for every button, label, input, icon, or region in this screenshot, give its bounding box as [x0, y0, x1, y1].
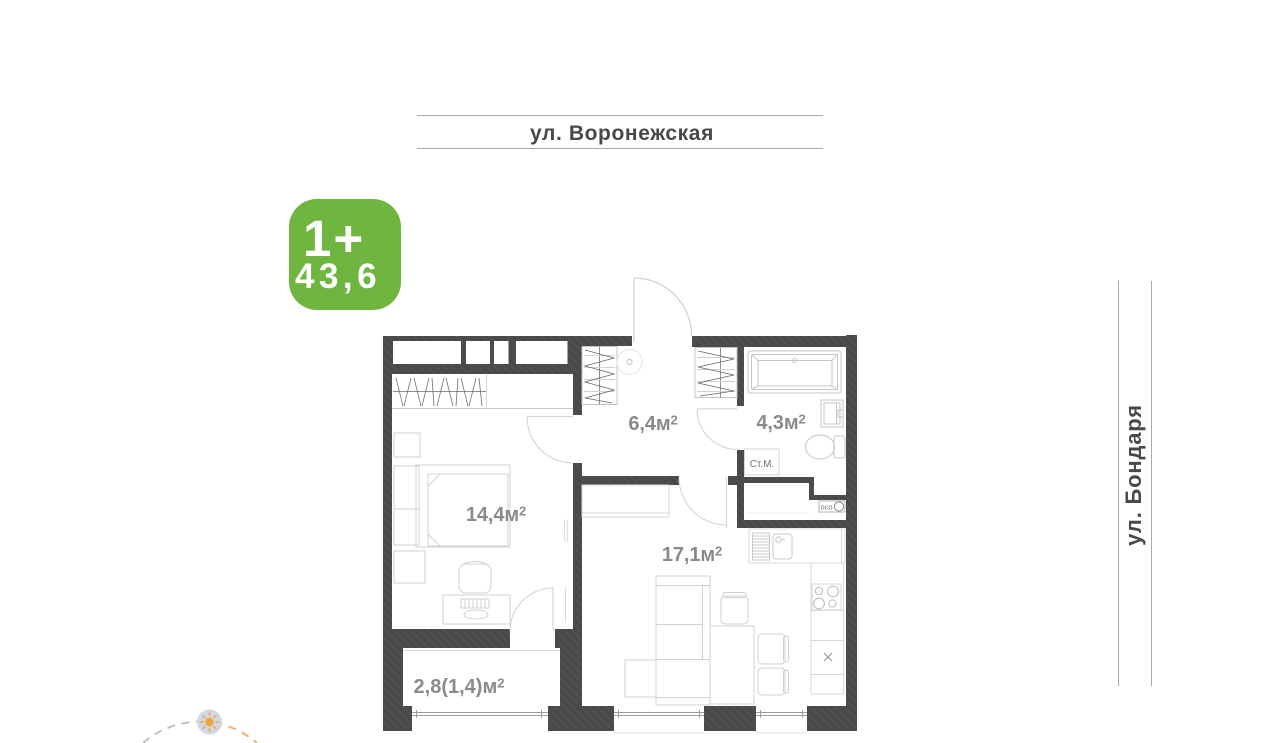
- svg-text:43,6: 43,6: [295, 257, 381, 296]
- svg-text:17,1м2: 17,1м2: [662, 544, 722, 567]
- svg-text:2,8(1,4)м2: 2,8(1,4)м2: [414, 676, 505, 699]
- svg-text:oco: oco: [821, 503, 833, 512]
- svg-text:14,4м2: 14,4м2: [466, 504, 526, 527]
- svg-text:ул. Воронежская: ул. Воронежская: [530, 122, 714, 145]
- svg-text:4,3м2: 4,3м2: [756, 412, 805, 435]
- svg-text:6,4м2: 6,4м2: [628, 413, 677, 436]
- svg-text:ул. Бондаря: ул. Бондаря: [1121, 404, 1146, 546]
- svg-text:Ст.М.: Ст.М.: [750, 459, 775, 470]
